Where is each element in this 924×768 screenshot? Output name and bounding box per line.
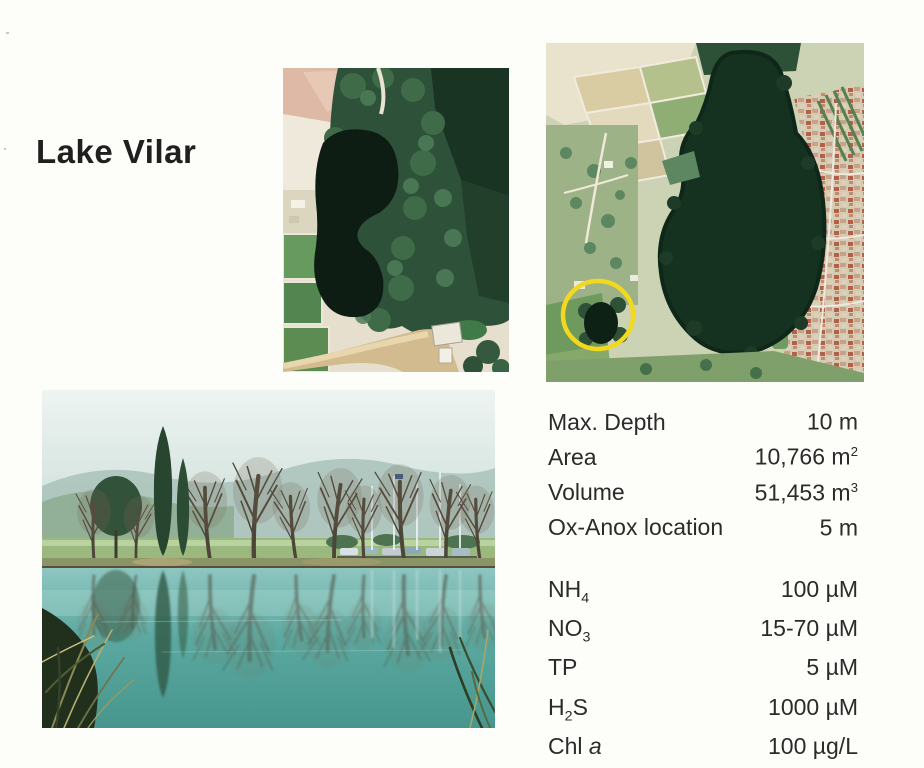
stat-value: 5 µM xyxy=(806,653,858,683)
stat-value: 5 m xyxy=(820,508,858,543)
stat-label: Max. Depth xyxy=(548,408,666,438)
stat-label: H2S xyxy=(548,693,588,732)
stat-label: Chl a xyxy=(548,732,602,768)
stat-row-tp: TP 5 µM xyxy=(548,653,858,692)
stat-row-h2s: H2S 1000 µM xyxy=(548,693,858,732)
physical-stats-block: Max. Depth 10 m Area 10,766 m2 Volume 51… xyxy=(548,402,858,543)
stat-value: 100 µM xyxy=(781,575,858,605)
stat-label: NH4 xyxy=(548,575,589,614)
slide-page: Lake Vilar xyxy=(0,0,924,768)
stat-row-volume: Volume 51,453 m3 xyxy=(548,473,858,508)
stat-label: Ox-Anox location xyxy=(548,513,723,543)
stat-value: 1000 µM xyxy=(768,693,858,723)
stat-label: NO3 xyxy=(548,614,590,653)
stat-value: 51,453 m3 xyxy=(755,473,858,508)
stat-row-ox-anox: Ox-Anox location 5 m xyxy=(548,508,858,543)
ground-photo-lake-vilar xyxy=(42,390,495,728)
page-title: Lake Vilar xyxy=(36,133,196,171)
chemical-stats-block: NH4 100 µM NO3 15-70 µM TP 5 µM H2S 1000… xyxy=(548,575,858,768)
stat-row-max-depth: Max. Depth 10 m xyxy=(548,402,858,437)
stat-value: 15-70 µM xyxy=(760,614,858,644)
scan-artifact xyxy=(6,32,9,34)
scan-artifact xyxy=(4,148,6,150)
stat-value: 100 µg/L xyxy=(768,732,858,762)
stat-label: Volume xyxy=(548,478,625,508)
stat-label: Area xyxy=(548,443,597,473)
stat-row-nh4: NH4 100 µM xyxy=(548,575,858,614)
aerial-photo-lake-region xyxy=(546,43,864,382)
stat-row-no3: NO3 15-70 µM xyxy=(548,614,858,653)
lake-statistics: Max. Depth 10 m Area 10,766 m2 Volume 51… xyxy=(548,402,858,768)
stat-value: 10,766 m2 xyxy=(755,437,858,472)
stat-value: 10 m xyxy=(807,402,858,437)
stat-row-area: Area 10,766 m2 xyxy=(548,437,858,472)
stat-label: TP xyxy=(548,653,577,692)
aerial-photo-lake-vilar-closeup xyxy=(283,68,509,372)
stat-row-chl-a: Chl a 100 µg/L xyxy=(548,732,858,768)
